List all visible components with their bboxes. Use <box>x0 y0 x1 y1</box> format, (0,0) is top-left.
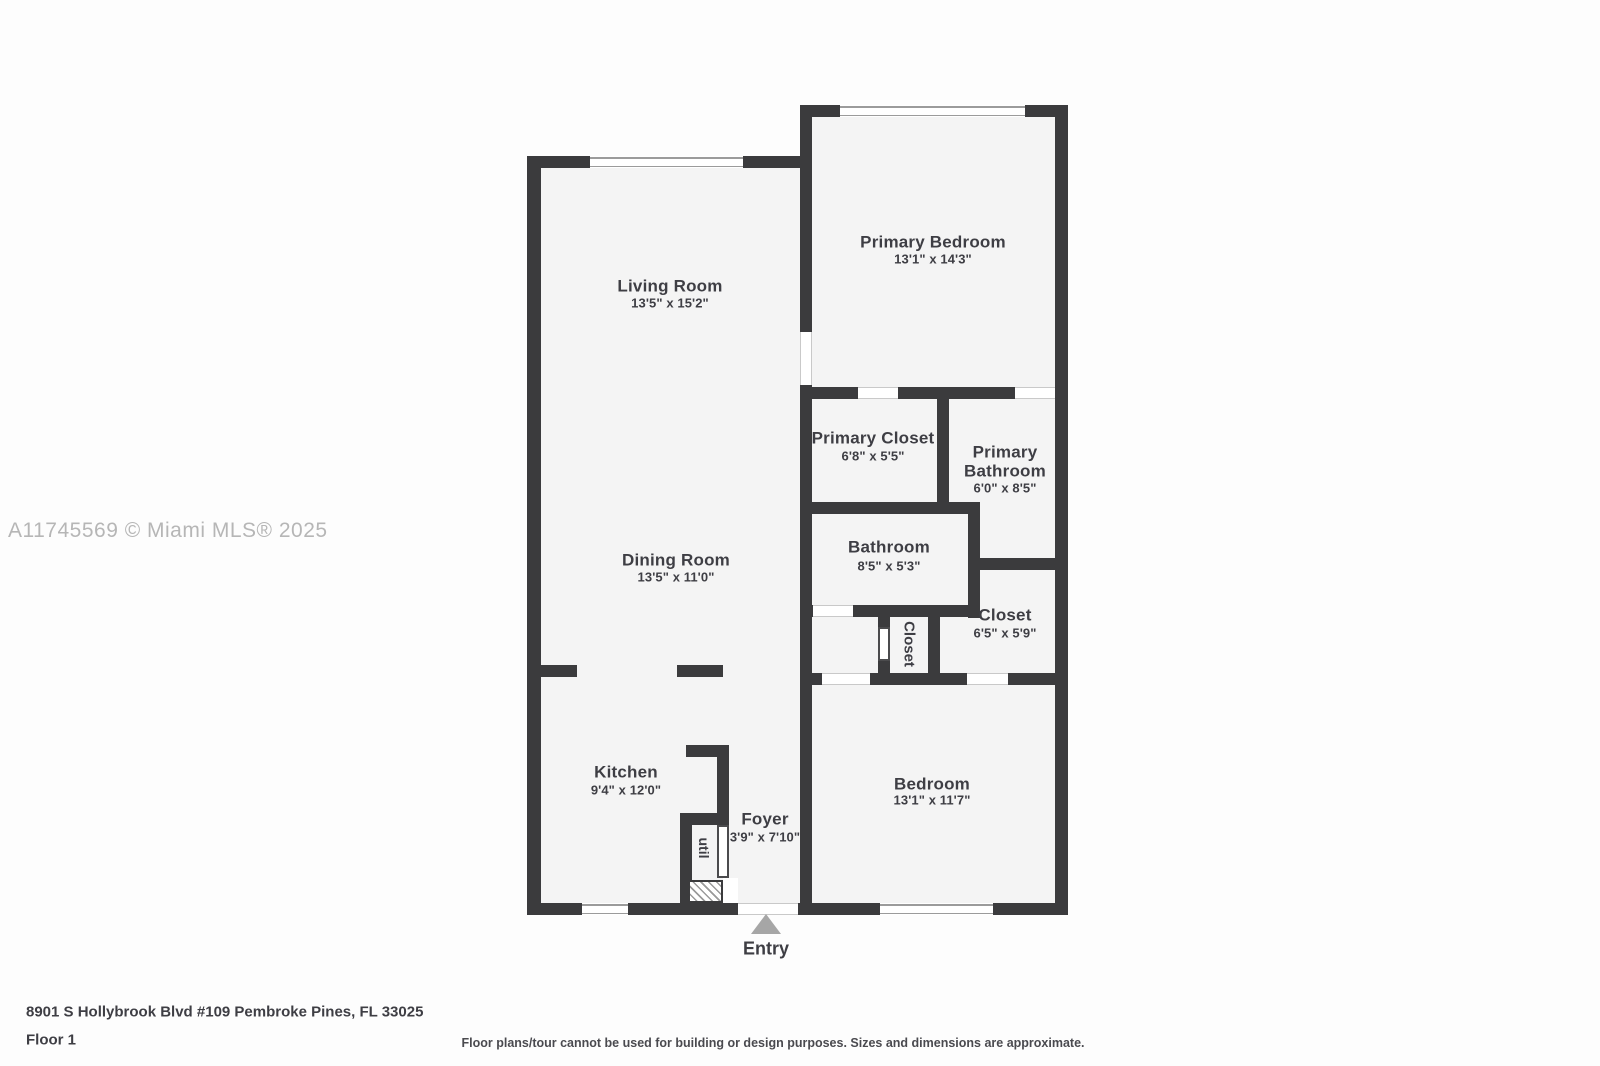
room-dims-living: 13'5" x 15'2" <box>631 297 709 310</box>
wall <box>878 617 890 627</box>
floor-number: Floor 1 <box>26 1032 76 1049</box>
util-door <box>717 825 729 878</box>
room-label-hall-closet: Closet <box>902 621 917 667</box>
room-dims-bedroom: 13'1" x 11'7" <box>894 794 971 807</box>
door-opening-primary-bedroom <box>800 332 812 385</box>
room-dims-primary-bedroom: 13'1" x 14'3" <box>894 253 972 266</box>
entry-label: Entry <box>743 939 789 960</box>
hall-closet-door <box>878 627 890 661</box>
wall <box>677 665 723 677</box>
entry-arrow-icon <box>751 914 781 934</box>
wall <box>968 558 1068 570</box>
door-opening-closet <box>967 673 1008 685</box>
room-label-dining: Dining Room <box>622 552 730 569</box>
room-dims-kitchen: 9'4" x 12'0" <box>591 784 661 797</box>
util-opening <box>723 878 738 903</box>
room-dims-primary-closet: 6'8" x 5'5" <box>842 450 905 463</box>
window-bedroom <box>880 903 993 915</box>
window-primary-bedroom <box>840 105 1025 117</box>
wall <box>527 156 541 915</box>
room-label-util: util <box>697 838 711 859</box>
room-label-kitchen: Kitchen <box>594 764 658 781</box>
disclaimer-text: Floor plans/tour cannot be used for buil… <box>461 1036 1084 1050</box>
door-opening-primary-closet <box>858 387 898 399</box>
wall <box>937 387 949 514</box>
window-living-room <box>590 156 743 168</box>
door-opening-primary-bathroom <box>1015 387 1055 399</box>
room-label-primary-bedroom: Primary Bedroom <box>860 234 1006 251</box>
wall <box>527 665 577 677</box>
room-label-primary-bathroom-1: Primary <box>973 444 1038 461</box>
wall <box>1055 105 1068 915</box>
room-dims-bathroom: 8'5" x 5'3" <box>858 560 921 573</box>
room-label-closet: Closet <box>978 607 1031 624</box>
room-label-primary-closet: Primary Closet <box>812 430 935 447</box>
room-dims-dining: 13'5" x 11'0" <box>638 571 715 584</box>
door-opening-bathroom <box>813 605 853 617</box>
property-address: 8901 S Hollybrook Blvd #109 Pembroke Pin… <box>26 1004 423 1021</box>
wall <box>800 502 980 514</box>
room-dims-closet: 6'5" x 5'9" <box>974 627 1037 640</box>
room-dims-foyer: 3'9" x 7'10" <box>730 831 800 844</box>
mls-watermark: A11745569 © Miami MLS® 2025 <box>8 519 328 543</box>
room-dims-primary-bathroom: 6'0" x 8'5" <box>974 482 1037 495</box>
room-label-living: Living Room <box>617 278 722 295</box>
window-kitchen <box>582 903 628 915</box>
door-opening-bedroom <box>822 673 870 685</box>
room-label-foyer: Foyer <box>741 811 788 828</box>
water-heater-hatch <box>688 880 723 903</box>
room-label-bathroom: Bathroom <box>848 539 930 556</box>
room-label-bedroom: Bedroom <box>894 776 970 793</box>
room-label-primary-bathroom-2: Bathroom <box>964 463 1046 480</box>
